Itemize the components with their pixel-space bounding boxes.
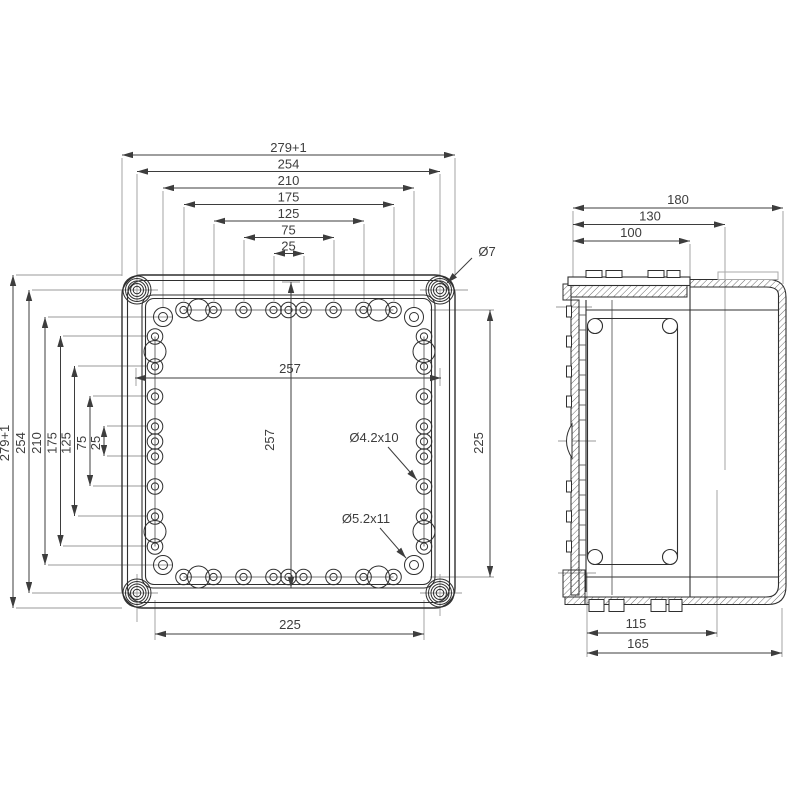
dim-label: 254 [13, 432, 28, 454]
dim-label: 210 [29, 432, 44, 454]
wall-knockout-bump [567, 306, 572, 317]
mounting-hole-outer [405, 308, 424, 327]
phantom-cover-edge [718, 272, 778, 280]
wall-knockout-bump [567, 511, 572, 522]
dim-label: 279+1 [270, 140, 307, 155]
interior-panel [588, 319, 678, 565]
dim-label: 75 [281, 223, 295, 238]
dim-label: 254 [278, 157, 300, 172]
dim-label: 125 [278, 206, 300, 221]
wall-knockout-bump [567, 396, 572, 407]
dim-label: 175 [45, 432, 60, 454]
cover-tab [648, 271, 664, 278]
dim-label: 115 [626, 616, 647, 631]
dim-label: 125 [59, 432, 74, 454]
cover-top-slab [568, 277, 690, 286]
callout-cover-hole: Ø7 [478, 244, 495, 259]
dim-label: 130 [639, 209, 661, 224]
dim-label: 25 [281, 239, 295, 254]
callout-corner-holes: Ø5.2x11 [342, 511, 390, 526]
base-tab [609, 600, 624, 612]
wall-knockout-bump [567, 336, 572, 347]
mounting-hole-inner [410, 561, 419, 570]
cover-tab [606, 271, 622, 278]
flange-screw-boss [563, 284, 571, 300]
mounting-hole-outer [405, 556, 424, 575]
dim-label: 25 [88, 436, 103, 450]
wall-knockout-bump [567, 366, 572, 377]
enclosure-front-outline [122, 275, 455, 608]
side-wall-segments [579, 315, 586, 570]
dim-label: 180 [667, 192, 689, 207]
dim-label: 225 [471, 432, 486, 454]
wall-knockout-bump [567, 541, 572, 552]
callout-small-holes: Ø4.2x10 [349, 430, 398, 445]
base-tab [651, 600, 666, 612]
technical-drawing: 279+1 254 210 175 125 75 25 279+1 254 21… [0, 0, 800, 800]
side-bottom-dimensions: 115 165 [587, 616, 782, 653]
cover-tab [667, 271, 680, 278]
cable-entry-bulge [567, 424, 573, 458]
cover-tab [586, 271, 602, 278]
plan-left-dimension-stack: 279+1 254 210 175 125 75 25 [0, 275, 104, 608]
enclosure-side-section [563, 271, 786, 612]
bottom-left-foot [563, 570, 585, 597]
plan-extension-lines [16, 158, 494, 640]
base-tab [589, 600, 604, 612]
dim-label: 165 [627, 636, 649, 651]
dim-label: 210 [278, 173, 300, 188]
base-tab [669, 600, 682, 612]
drawing-sheet: 279+1 254 210 175 125 75 25 279+1 254 21… [0, 0, 800, 800]
cover-hatch-band [571, 286, 687, 298]
side-view: 180 130 100 [556, 192, 786, 657]
dim-label: 279+1 [0, 425, 12, 462]
dim-label: 75 [74, 436, 89, 450]
base-shell-section [585, 280, 786, 605]
dim-label: 175 [278, 190, 300, 205]
plan-top-dimension-stack: 279+1 254 210 175 125 75 25 [122, 140, 455, 254]
dim-label: 100 [620, 225, 642, 240]
side-top-dimensions: 180 130 100 [573, 192, 783, 241]
bottom-left-foot-step [565, 597, 585, 605]
dim-label: 257 [279, 361, 301, 376]
mounting-hole-inner [410, 313, 419, 322]
wall-knockout-bump [567, 481, 572, 492]
plan-view: 279+1 254 210 175 125 75 25 279+1 254 21… [0, 140, 496, 640]
corner-screw-bosses [123, 276, 454, 607]
dim-label: 225 [279, 617, 301, 632]
dim-label: 257 [262, 429, 277, 451]
